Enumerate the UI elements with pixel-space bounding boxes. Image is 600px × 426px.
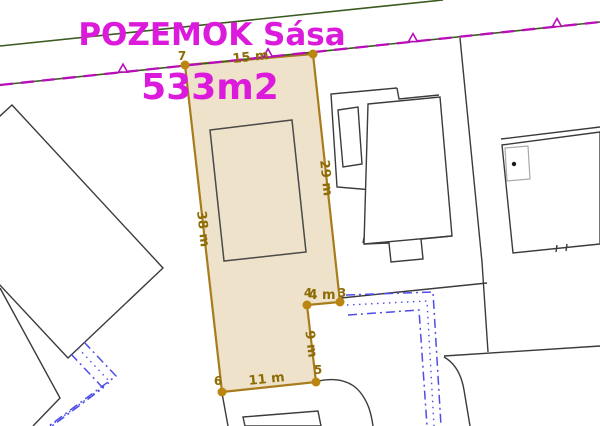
dimension-label-notch: 4 m bbox=[308, 288, 335, 303]
ekn-line-right-center bbox=[347, 301, 434, 426]
map-canvas: 15 m 29 m 38 m 4 m 9 m 11 m 7 3 4 5 6 PO… bbox=[0, 0, 600, 426]
boundary-line-east bbox=[444, 346, 600, 356]
boundary-triangle-1 bbox=[119, 64, 128, 72]
vertex-dot-4[interactable] bbox=[303, 301, 312, 310]
ekn-line-right-inner bbox=[348, 310, 427, 426]
boundary-line-below-point6 bbox=[222, 393, 228, 426]
parcel-division-line bbox=[460, 38, 488, 352]
vertex-label-6: 6 bbox=[214, 374, 222, 388]
map-title: POZEMOK Sása bbox=[78, 17, 345, 53]
dimension-label-left: 38 m bbox=[193, 210, 212, 248]
road-edge-east bbox=[444, 357, 470, 426]
boundary-triangle-3 bbox=[409, 34, 418, 42]
boundary-triangle-4 bbox=[553, 19, 562, 27]
boundary-line-from-point3 bbox=[341, 283, 487, 298]
cadastral-map-view: 15 m 29 m 38 m 4 m 9 m 11 m 7 3 4 5 6 PO… bbox=[0, 0, 600, 426]
vertex-dot-6[interactable] bbox=[218, 388, 227, 397]
building-right-point-mark bbox=[512, 162, 516, 166]
building-outline-center-main bbox=[364, 97, 452, 244]
vertex-label-4: 4 bbox=[304, 286, 312, 300]
vertex-label-5: 5 bbox=[314, 363, 322, 377]
building-outline-right bbox=[502, 132, 600, 253]
road-edge-west bbox=[318, 380, 373, 426]
building-outline-center-annex bbox=[338, 107, 362, 167]
building-outline-left-large bbox=[0, 105, 163, 358]
vertex-dot-3[interactable] bbox=[336, 298, 345, 307]
ekn-line-left-inner bbox=[52, 354, 103, 426]
area-label: 533m2 bbox=[141, 67, 279, 108]
building-outline-bottom bbox=[243, 411, 321, 426]
ekn-line-left-outer bbox=[49, 342, 116, 426]
vertex-dot-5[interactable] bbox=[312, 378, 321, 387]
